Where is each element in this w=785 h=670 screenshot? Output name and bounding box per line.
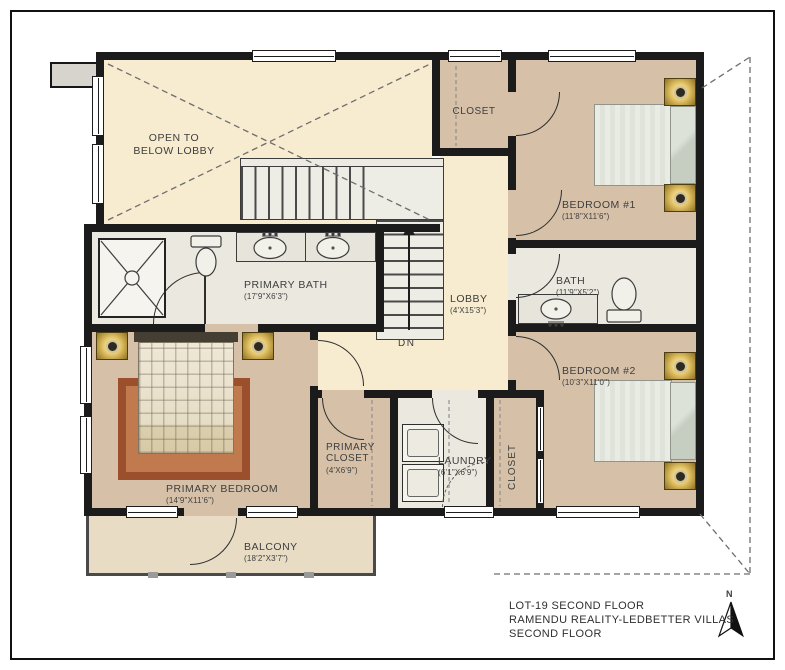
stair-direction-line xyxy=(408,234,410,330)
label-bedroom-1: BEDROOM #1 (11'8"X11'6") xyxy=(562,186,636,235)
door-leaf-primary-bath xyxy=(204,272,206,324)
nightstand xyxy=(242,332,274,360)
label-closet-side: CLOSET xyxy=(507,420,520,490)
stair-flight-upper xyxy=(240,166,376,220)
closet-side-door-panel-2 xyxy=(537,458,544,504)
nightstand xyxy=(664,78,696,106)
room-dims: (17'9"X6'3") xyxy=(244,292,328,302)
title-line-2: RAMENDU REALITY-LEDBETTER VILLAS xyxy=(509,613,734,628)
balcony-post xyxy=(304,572,314,578)
stair-flight-lower xyxy=(376,219,444,340)
stair-landing xyxy=(374,166,444,220)
label-open-lobby: OPEN TO BELOW LOBBY xyxy=(118,132,230,157)
window-primary-bedroom-left-1 xyxy=(80,346,92,404)
bed-bedroom-1 xyxy=(594,104,672,186)
title-line-1: LOT-19 SECOND FLOOR xyxy=(509,599,644,614)
window-lobby-top xyxy=(252,50,336,62)
room-dims: (11'8"X11'6") xyxy=(562,212,636,222)
room-name: BEDROOM #2 xyxy=(562,365,636,377)
label-bath: BATH (11'9"X5'2") xyxy=(556,262,599,311)
label-balcony: BALCONY (18'2"X3'7") xyxy=(244,528,298,577)
label-primary-bedroom: PRIMARY BEDROOM (14'9"X11'6") xyxy=(166,470,278,519)
door-gap-primary-bedroom xyxy=(310,340,318,386)
wall-stair-left xyxy=(376,224,384,332)
door-gap-bedroom-1 xyxy=(508,190,516,238)
wall-ext-right xyxy=(696,52,704,516)
label-closet-top: CLOSET xyxy=(440,106,508,119)
room-name: LAUNDRY xyxy=(438,455,492,467)
door-gap-bath xyxy=(508,254,516,300)
wall-bath-top xyxy=(508,240,704,248)
window-primary-bedroom-left-2 xyxy=(80,416,92,474)
bed-primary xyxy=(138,342,234,454)
door-gap-primary-closet xyxy=(322,390,364,398)
room-name: BEDROOM #1 xyxy=(562,199,636,211)
door-gap-bedroom-2 xyxy=(508,336,516,380)
room-name: PRIMARY BATH xyxy=(244,279,328,291)
window-lobby-left-2 xyxy=(92,144,104,204)
title-line-3: SECOND FLOOR xyxy=(509,627,602,642)
closet-side-door-panel-1 xyxy=(537,406,544,452)
nightstand xyxy=(664,352,696,380)
label-primary-closet: PRIMARY CLOSET (4'X6'9") xyxy=(326,430,375,487)
balcony-post xyxy=(148,572,158,578)
wall-laundry-left xyxy=(390,390,398,516)
room-dims: (10'3"X11'0") xyxy=(562,378,636,388)
room-dims: (4'X15'3") xyxy=(450,306,488,316)
door-gap-closet-top xyxy=(508,92,516,136)
room-dims: (18'2"X3'7") xyxy=(244,554,298,564)
room-name: PRIMARY BEDROOM xyxy=(166,483,278,495)
room-floor-closet-top xyxy=(440,60,508,148)
window-bedroom-2-bottom xyxy=(556,506,640,518)
door-gap-primary-bath xyxy=(205,324,258,332)
nightstand xyxy=(664,184,696,212)
bed-pillow-bedroom-1 xyxy=(670,106,696,184)
window-lobby-left-1 xyxy=(92,76,104,136)
vanity-divider xyxy=(305,232,306,262)
wall-under-stairs xyxy=(84,224,440,232)
room-name: BATH xyxy=(556,275,585,287)
room-name: PRIMARY CLOSET xyxy=(326,442,375,465)
washer-door xyxy=(407,429,439,457)
door-gap-laundry xyxy=(432,390,478,398)
wall-closet-top-left xyxy=(432,60,440,156)
vanity-primary-bath xyxy=(236,232,376,262)
room-name: BALCONY xyxy=(244,541,298,553)
window-closet-top xyxy=(448,50,502,62)
window-laundry-bottom xyxy=(444,506,494,518)
room-dims: (6'1"X6'9") xyxy=(438,468,492,478)
label-bedroom-2: BEDROOM #2 (10'3"X11'0") xyxy=(562,352,636,401)
room-dims: (14'9"X11'6") xyxy=(166,496,278,506)
label-lobby: LOBBY (4'X15'3") xyxy=(450,280,488,329)
room-floor-lobby xyxy=(440,156,508,398)
room-dims: (11'9"X5'2") xyxy=(556,288,599,298)
wall-closet-top-bottom xyxy=(432,148,516,156)
window-bedroom-1-top xyxy=(548,50,636,62)
room-dims: (4'X6'9") xyxy=(326,466,375,476)
nightstand xyxy=(664,462,696,490)
room-name: LOBBY xyxy=(450,293,488,305)
nightstand xyxy=(96,332,128,360)
wall-bath-bottom xyxy=(508,324,704,332)
label-laundry: LAUNDRY (6'1"X6'9") xyxy=(438,442,492,491)
bed-pillow-bedroom-2 xyxy=(670,382,696,460)
north-label: N xyxy=(726,588,733,601)
balcony-post xyxy=(226,572,236,578)
dryer-door xyxy=(407,469,439,497)
label-stairs-down: DN xyxy=(398,338,415,351)
label-primary-bath: PRIMARY BATH (17'9"X6'3") xyxy=(244,266,328,315)
floor-plan-canvas: OPEN TO BELOW LOBBY CLOSET BEDROOM #1 (1… xyxy=(0,0,785,670)
